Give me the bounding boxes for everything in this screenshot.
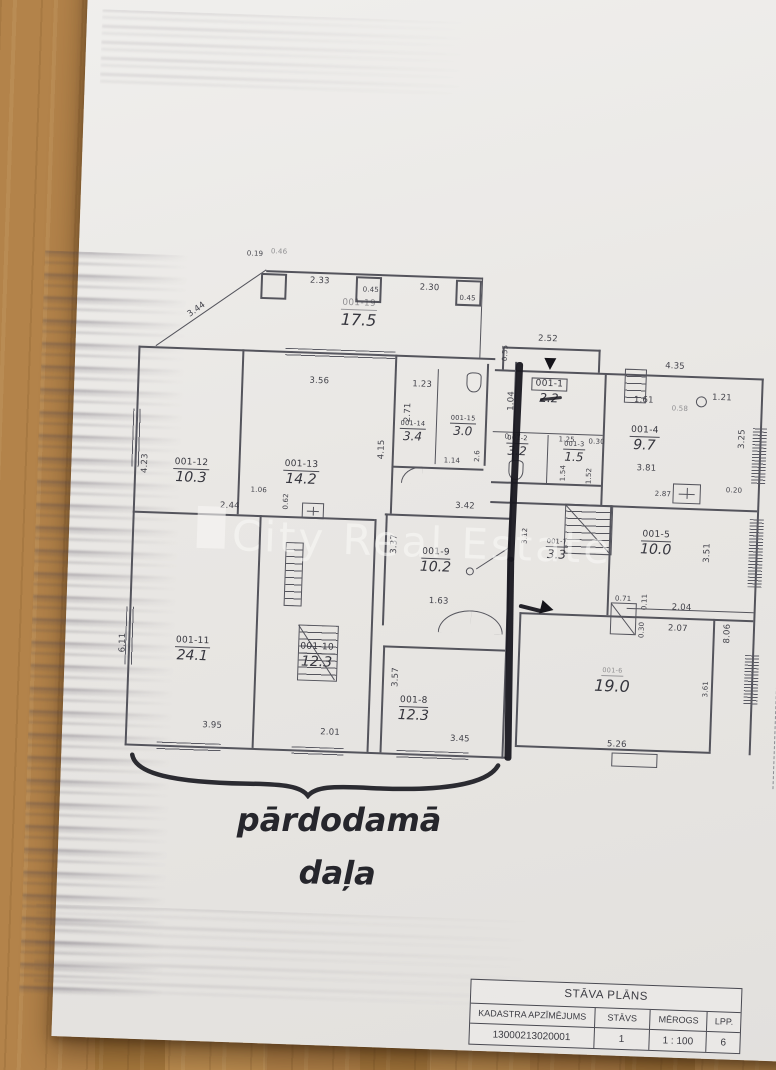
window (285, 348, 395, 360)
dimension-label: 0.71 (615, 595, 632, 603)
dimension-label: 0.46 (271, 248, 288, 256)
wall (515, 612, 522, 745)
watermark-logo-block (197, 506, 226, 549)
dimension-label: 3.61 (702, 681, 710, 698)
wall (598, 350, 601, 373)
dimension-label: 2.30 (420, 283, 440, 292)
room-area: 17.5 (340, 310, 376, 331)
wall (503, 346, 601, 351)
room-label: 001-8 12.3 (380, 694, 446, 726)
room-id: 001-5 (641, 529, 671, 542)
room-id: 001-19 (341, 298, 377, 311)
handwritten-text-line2: daļa (262, 853, 413, 894)
dimension-label: 1.21 (712, 394, 732, 403)
window (747, 519, 763, 587)
dimension-label: 2.04 (672, 603, 692, 612)
wall (391, 466, 483, 471)
lpp-value: 6 (707, 1032, 740, 1053)
dimension-label: 0.30 (638, 622, 646, 639)
room-area: 10.3 (175, 469, 207, 488)
window (743, 655, 759, 705)
room-area: 1.5 (564, 449, 584, 465)
photographed-floor-plan-sheet: 2.33 2.30 0.19 0.45 0.45 3.44 0.46 3.56 … (51, 0, 776, 1063)
col-merogs-header: MĒROGS (650, 1010, 708, 1032)
column-post (260, 273, 287, 300)
dimension-label: 1.54 (560, 465, 568, 482)
room-area: 19.0 (594, 676, 630, 697)
handwritten-text-line1: pārdodamā (224, 801, 454, 839)
dimension-label: 1.06 (250, 487, 267, 495)
room-area: 24.1 (176, 647, 208, 666)
room-label: 001-3 1.5 (546, 440, 603, 466)
dimension-label: 1.63 (429, 597, 449, 606)
room-area: 3.0 (453, 424, 473, 440)
marker-arrow-down-icon (544, 358, 557, 376)
room-label: 001-13 14.2 (271, 458, 332, 489)
room-area: 12.3 (397, 707, 429, 726)
dimension-label: 0.62 (283, 493, 291, 510)
dimension-label: 2.87 (655, 491, 672, 499)
dimension-label: 8.06 (723, 624, 732, 644)
room-label: 001-14 3.4 (390, 420, 435, 445)
dimension-label: 1.23 (412, 380, 432, 389)
room-label: 001-5 10.0 (624, 529, 687, 560)
fixture-icon (696, 396, 707, 407)
dimension-label: 2.52 (538, 335, 558, 344)
dimension-label: 0.11 (641, 594, 649, 611)
dimension-label: 3.51 (703, 543, 712, 563)
dimension-label: 0.20 (726, 487, 743, 495)
room-label: 001-6 19.0 (582, 666, 643, 697)
dimension-label: 4.23 (141, 453, 150, 473)
dimension-label: 0.45 (459, 295, 476, 303)
dimension-label: 2.01 (320, 728, 340, 737)
wall (435, 369, 439, 464)
room-label: 001-1 2.2 (522, 377, 577, 407)
room-area: 3.4 (403, 429, 423, 445)
dimension-label: 0.45 (362, 286, 379, 294)
dimension-label: 3.42 (455, 502, 475, 511)
stavs-value: 1 (594, 1028, 650, 1050)
kadastra-value: 13000213020001 (469, 1024, 594, 1048)
dimension-label: 5.26 (607, 740, 627, 749)
wall (383, 645, 505, 651)
dimension-label: 3.95 (202, 721, 222, 730)
room-id: 001-1 (531, 377, 567, 391)
wall (237, 349, 245, 514)
dimension-label: 0.55 (502, 345, 510, 362)
toilet-icon (466, 372, 482, 393)
wall (156, 269, 267, 346)
dimension-label: 4.15 (377, 439, 386, 459)
room-id: 001-6 (601, 667, 624, 677)
dimension-label: 4.35 (665, 362, 685, 371)
door-arc (470, 610, 504, 634)
room-area: 12.3 (301, 653, 333, 672)
vent-plus-icon (672, 483, 701, 504)
dimension-label: 3.81 (636, 464, 656, 473)
window (751, 428, 767, 484)
wall (125, 346, 141, 746)
room-label: 001-4 9.7 (614, 424, 675, 455)
room-area: 10.0 (640, 541, 672, 560)
col-stavs-header: STĀVS (595, 1008, 651, 1030)
merogs-value: 1 : 100 (649, 1030, 707, 1052)
room-label: 001-11 24.1 (159, 635, 225, 667)
title-block: STĀVA PLĀNS KADASTRA APZĪMĒJUMS STĀVS MĒ… (468, 979, 742, 1054)
room-label: 001-10 12.3 (286, 641, 347, 672)
dimension-label: 3.56 (309, 377, 329, 386)
room-label: 001-15 3.0 (440, 414, 485, 439)
dimension-label: 2.6 (474, 450, 481, 462)
dimension-label: 2.07 (668, 624, 688, 633)
entrance-step (611, 752, 657, 768)
door-arc (438, 609, 472, 633)
room-id: 001-4 (630, 425, 660, 438)
dimension-label: 3.45 (450, 735, 470, 744)
dimension-label: 6.11 (118, 633, 127, 653)
dimension-label: 3.25 (738, 429, 747, 449)
door-arc (401, 466, 423, 484)
dimension-label: 2.33 (310, 277, 330, 286)
wall (490, 501, 757, 512)
dimension-label: 0.58 (672, 405, 689, 413)
col-lpp-header: LPP. (707, 1012, 740, 1033)
dimension-label: 1.52 (586, 468, 594, 485)
room-label: 001-19 17.5 (328, 297, 389, 331)
room-area: 9.7 (633, 437, 656, 455)
dimension-label: 1.14 (444, 457, 461, 465)
dimension-label: 3.57 (391, 667, 400, 687)
dimension-extension-line (772, 381, 776, 789)
room-label: 001-12 10.3 (161, 457, 222, 488)
room-area: 14.2 (285, 471, 317, 490)
dimension-label: 1.61 (634, 396, 654, 405)
dimension-label: 0.19 (247, 250, 264, 258)
room-id: 001-8 (399, 695, 429, 708)
